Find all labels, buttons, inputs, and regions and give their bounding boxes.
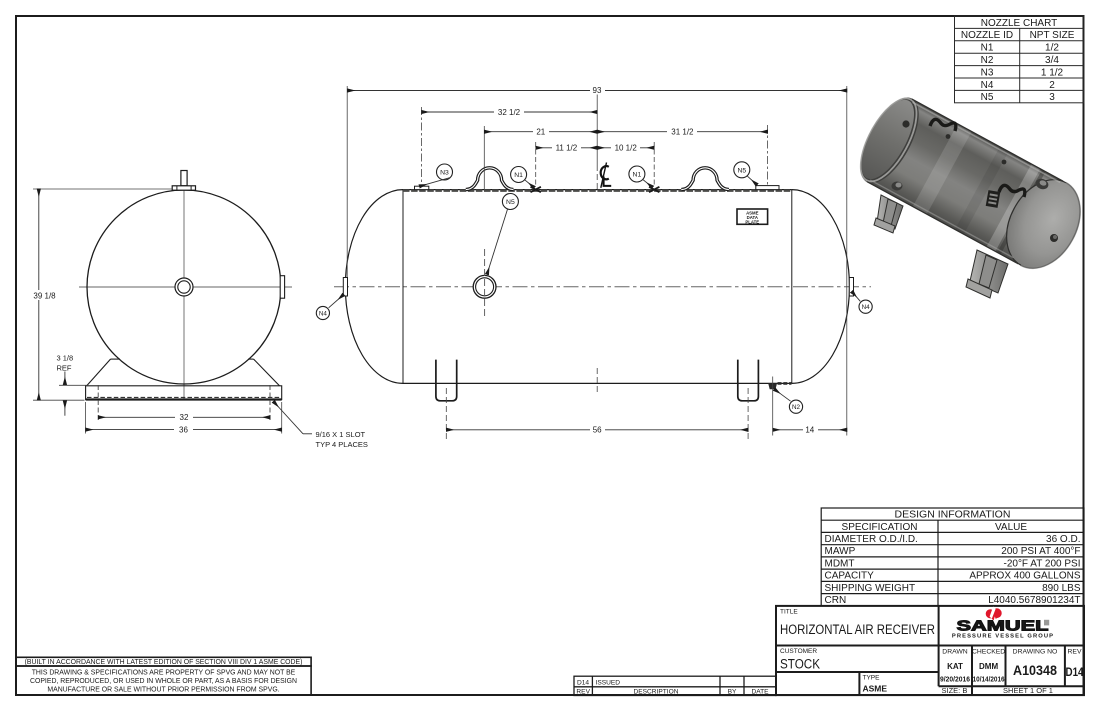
svg-text:DIAMETER O.D./I.D.: DIAMETER O.D./I.D. bbox=[825, 534, 918, 545]
svg-text:REF: REF bbox=[57, 364, 72, 373]
svg-text:32 1/2: 32 1/2 bbox=[498, 108, 521, 117]
svg-text:SHIPPING WEIGHT: SHIPPING WEIGHT bbox=[825, 583, 916, 594]
svg-text:MANUFACTURE OR SALE WITHOUT PR: MANUFACTURE OR SALE WITHOUT PRIOR PERMIS… bbox=[47, 687, 279, 694]
svg-text:N5: N5 bbox=[506, 199, 515, 206]
svg-text:31 1/2: 31 1/2 bbox=[671, 128, 694, 137]
svg-text:2: 2 bbox=[1049, 80, 1055, 91]
svg-text:REV: REV bbox=[576, 689, 590, 696]
svg-text:PLATE: PLATE bbox=[745, 219, 759, 224]
svg-text:SAMUEL: SAMUEL bbox=[957, 618, 1049, 635]
svg-text:DESCRIPTION: DESCRIPTION bbox=[633, 689, 678, 696]
svg-text:CAPACITY: CAPACITY bbox=[825, 571, 875, 582]
svg-text:93: 93 bbox=[593, 86, 602, 95]
svg-text:BY: BY bbox=[728, 689, 737, 696]
svg-text:36: 36 bbox=[179, 426, 188, 435]
svg-text:L4040.5678901234T: L4040.5678901234T bbox=[988, 595, 1080, 606]
svg-text:STOCK: STOCK bbox=[780, 657, 820, 672]
svg-text:1 1/2: 1 1/2 bbox=[1041, 67, 1064, 78]
svg-text:DRAWING NO: DRAWING NO bbox=[1013, 649, 1058, 656]
svg-text:PRESSURE VESSEL GROUP: PRESSURE VESSEL GROUP bbox=[952, 634, 1054, 640]
svg-text:ISSUED: ISSUED bbox=[596, 679, 621, 686]
svg-text:14: 14 bbox=[805, 426, 814, 435]
svg-text:N3: N3 bbox=[440, 170, 449, 177]
svg-text:A10348: A10348 bbox=[1013, 662, 1057, 678]
svg-text:REV: REV bbox=[1068, 649, 1082, 656]
svg-text:21: 21 bbox=[536, 128, 545, 137]
svg-text:890 LBS: 890 LBS bbox=[1042, 583, 1081, 594]
svg-text:NPT SIZE: NPT SIZE bbox=[1030, 30, 1075, 41]
svg-text:10 1/2: 10 1/2 bbox=[615, 144, 638, 153]
svg-text:D14: D14 bbox=[1066, 665, 1084, 679]
svg-text:MDMT: MDMT bbox=[825, 558, 855, 569]
svg-text:N1: N1 bbox=[633, 172, 642, 179]
svg-text:SHEET 1 OF 1: SHEET 1 OF 1 bbox=[1003, 686, 1053, 695]
svg-text:N5: N5 bbox=[981, 92, 994, 103]
svg-text:32: 32 bbox=[180, 413, 189, 422]
svg-text:VALUE: VALUE bbox=[995, 522, 1027, 533]
svg-text:NOZZLE ID: NOZZLE ID bbox=[961, 30, 1013, 41]
svg-text:39 1/8: 39 1/8 bbox=[33, 291, 56, 300]
svg-text:TYP 4 PLACES: TYP 4 PLACES bbox=[316, 440, 368, 449]
svg-text:DMM: DMM bbox=[979, 662, 998, 671]
svg-text:DRAWN: DRAWN bbox=[942, 649, 968, 656]
svg-text:3/4: 3/4 bbox=[1045, 55, 1059, 66]
svg-text:N5: N5 bbox=[737, 167, 746, 174]
svg-text:KAT: KAT bbox=[947, 662, 963, 671]
svg-text:N4: N4 bbox=[319, 310, 328, 317]
svg-text:D14: D14 bbox=[577, 679, 589, 686]
svg-text:-20°F AT 200 PSI: -20°F AT 200 PSI bbox=[1003, 558, 1080, 569]
svg-text:N4: N4 bbox=[981, 80, 994, 91]
svg-text:TITLE: TITLE bbox=[780, 609, 798, 616]
svg-text:56: 56 bbox=[593, 426, 602, 435]
svg-text:APPROX 400 GALLONS: APPROX 400 GALLONS bbox=[969, 571, 1080, 582]
svg-text:CRN: CRN bbox=[825, 595, 847, 606]
svg-text:36 O.D.: 36 O.D. bbox=[1046, 534, 1080, 545]
svg-text:CHECKED: CHECKED bbox=[972, 649, 1005, 656]
svg-text:N4: N4 bbox=[862, 304, 871, 311]
svg-text:TYPE: TYPE bbox=[863, 675, 881, 682]
svg-text:(BUILT IN ACCORDANCE WITH LATE: (BUILT IN ACCORDANCE WITH LATEST EDITION… bbox=[25, 659, 303, 666]
svg-text:N2: N2 bbox=[981, 55, 994, 66]
svg-text:10/14/2016: 10/14/2016 bbox=[973, 677, 1005, 684]
svg-text:SIZE: B: SIZE: B bbox=[942, 686, 968, 695]
svg-text:NOZZLE CHART: NOZZLE CHART bbox=[981, 18, 1058, 29]
svg-text:N3: N3 bbox=[981, 67, 994, 78]
svg-text:1/2: 1/2 bbox=[1045, 43, 1059, 54]
svg-text:SPECIFICATION: SPECIFICATION bbox=[842, 522, 918, 533]
svg-text:9/20/2016: 9/20/2016 bbox=[940, 677, 970, 684]
svg-text:N1: N1 bbox=[514, 172, 523, 179]
svg-text:HORIZONTAL AIR RECEIVER: HORIZONTAL AIR RECEIVER bbox=[780, 622, 935, 637]
svg-text:9/16 X 1 SLOT: 9/16 X 1 SLOT bbox=[316, 430, 366, 439]
svg-text:200 PSI AT 400°F: 200 PSI AT 400°F bbox=[1001, 546, 1080, 557]
svg-text:COPIED, REPRODUCED, OR USED IN: COPIED, REPRODUCED, OR USED IN WHOLE OR … bbox=[30, 678, 297, 685]
svg-text:3: 3 bbox=[1049, 92, 1055, 103]
svg-text:CUSTOMER: CUSTOMER bbox=[780, 648, 817, 655]
svg-text:3 1/8: 3 1/8 bbox=[57, 354, 74, 363]
svg-text:MAWP: MAWP bbox=[825, 546, 856, 557]
svg-text:DATE: DATE bbox=[751, 689, 769, 696]
svg-text:N2: N2 bbox=[792, 404, 801, 411]
svg-text:N1: N1 bbox=[981, 43, 994, 54]
svg-text:THIS DRAWING & SPECIFICATIONS: THIS DRAWING & SPECIFICATIONS ARE PROPER… bbox=[32, 670, 296, 677]
svg-text:DESIGN INFORMATION: DESIGN INFORMATION bbox=[895, 509, 1011, 521]
svg-text:11 1/2: 11 1/2 bbox=[556, 144, 578, 153]
svg-text:ASME: ASME bbox=[863, 684, 888, 694]
